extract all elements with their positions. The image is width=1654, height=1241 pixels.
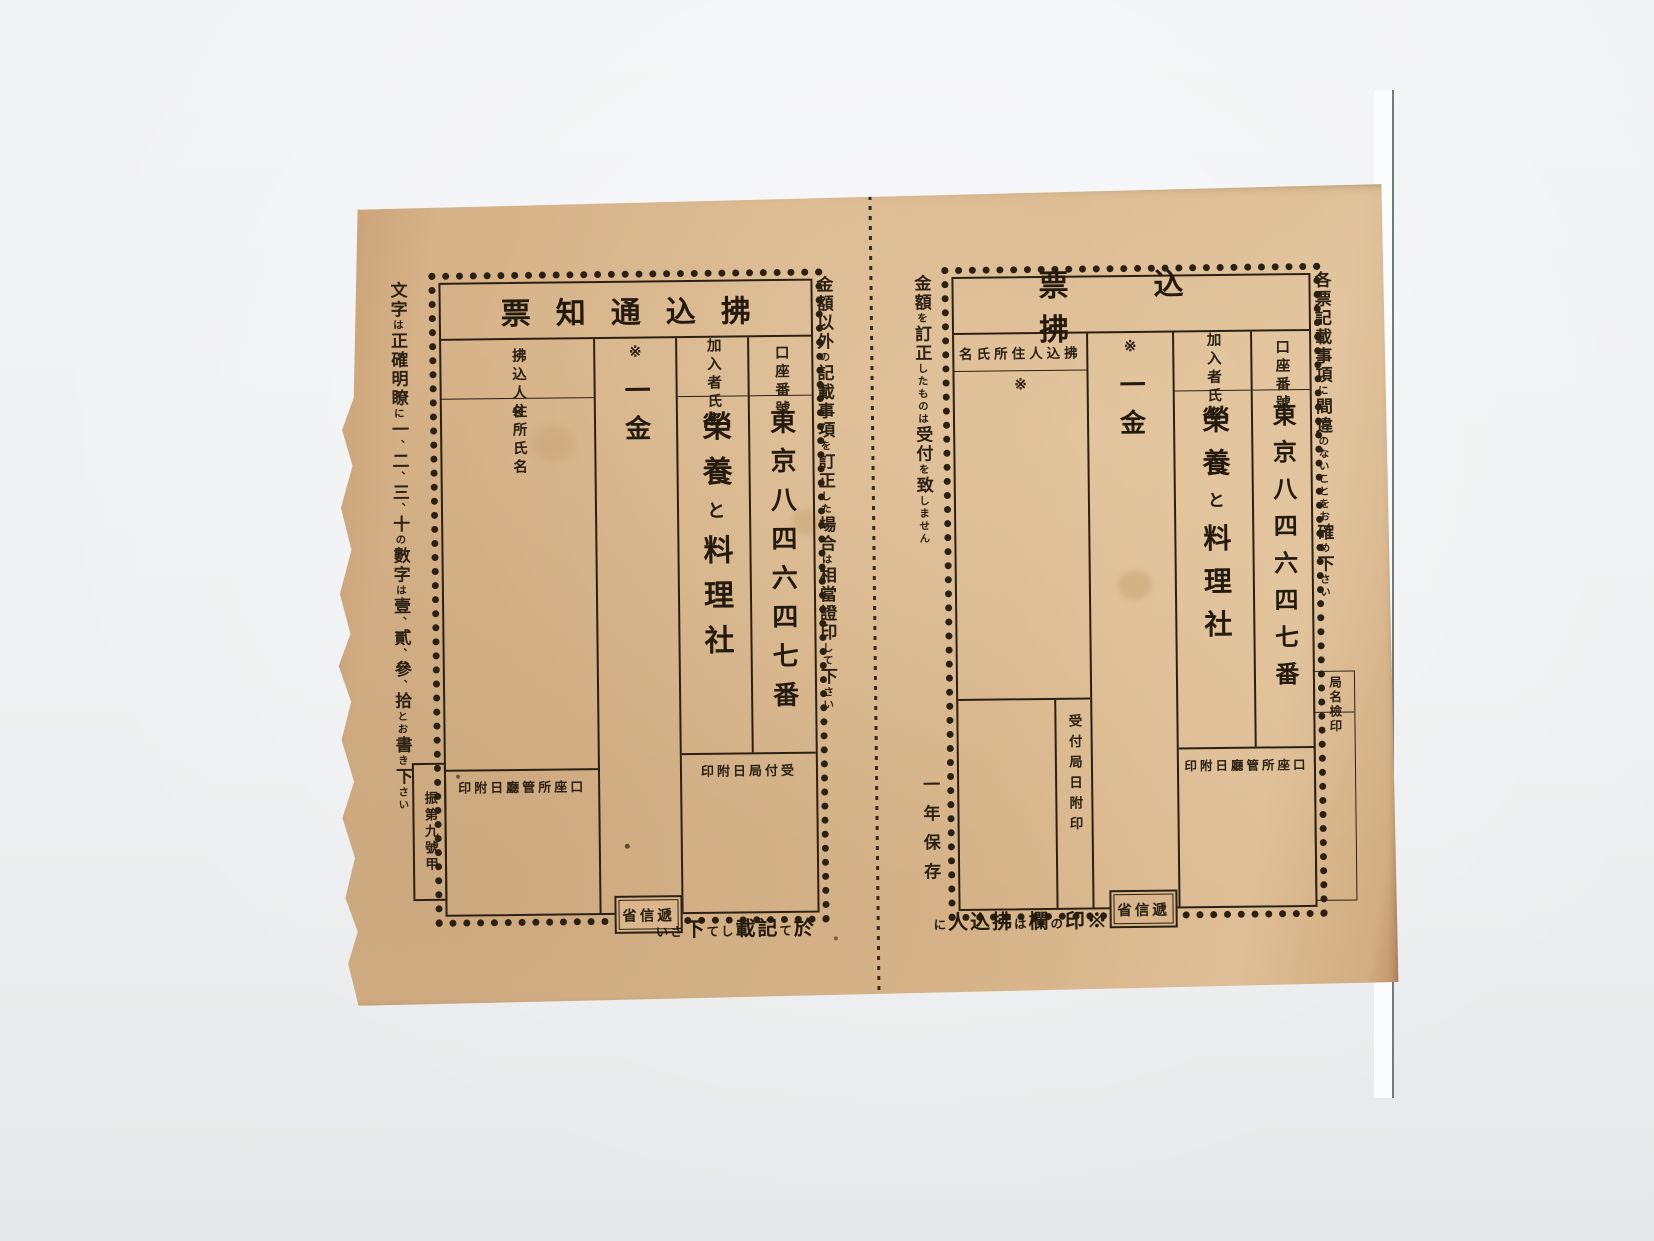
right-slip-title: 票込拂 — [953, 275, 1309, 335]
payment-slip: 票込拂 名氏所住人込拂 ※ 受付局日附印 — [941, 263, 1327, 921]
payer-asterisk: ※ — [511, 399, 524, 429]
office-name-label: 局名 — [1327, 676, 1341, 705]
subscriber-label: 加入者氏名 — [1203, 332, 1223, 390]
account-number-label: 口座番號 — [1271, 339, 1290, 381]
payer-column: 名氏所住人込拂 ※ 受付局日附印 — [954, 333, 1095, 908]
account-number-column: 口座番號 東京八四六四七番 — [1252, 331, 1314, 747]
account-office-stamp-area: 印附日廳管所座口 — [1179, 746, 1316, 907]
right-slip-amount-correction-note: 金額を訂正したものは受付を致しません — [912, 274, 932, 574]
subscriber-name: 榮養と料理社 — [1193, 405, 1236, 685]
left-slip-writing-instruction: 文字は正確明瞭に一、二、三、十の數字は壹、貳、參、拾とお書き下さい — [388, 281, 410, 756]
account-office-stamp-area: 印附日廳管所座口 — [446, 768, 600, 915]
office-stamp-cell — [1314, 712, 1356, 899]
amount-column: ※ 一金 — [595, 338, 684, 913]
account-number-column: 口座番號 東京八四六四七番 — [749, 337, 816, 753]
account-number-value: 東京八四六四七番 — [762, 408, 803, 743]
subscriber-account-pair: 加入者氏名 榮養と料理社 口座番號 東京八四六四七番 — [677, 337, 818, 912]
payer-label: 拂込人住所氏名 — [508, 348, 527, 390]
subscriber-column: 加入者氏名 榮養と料理社 — [677, 337, 754, 753]
account-number-header: 口座番號 — [1252, 331, 1310, 391]
account-number-label: 口座番號 — [771, 345, 790, 387]
amount-asterisk: ※ — [629, 339, 642, 369]
payer-header: 拂込人住所氏名 — [441, 339, 594, 400]
photo-scene: 文字は正確明瞭に一、二、三、十の數字は壹、貳、參、拾とお書き下さい 振第九號甲 … — [0, 0, 1654, 1241]
office-stamp-box: 局名檢印 — [1313, 670, 1358, 900]
receiving-office-stamp-area: 受付局日附印 — [958, 697, 1092, 908]
payment-slip-frame: 票込拂 名氏所住人込拂 ※ 受付局日附印 — [951, 273, 1317, 911]
account-office-stamp-label: 印附日廳管所座口 — [446, 770, 598, 797]
payer-column: 拂込人住所氏名 ※ 印附日廳管所座口 — [441, 339, 602, 915]
payer-asterisk: ※ — [1014, 371, 1027, 401]
subscriber-header: 加入者氏名 — [677, 337, 748, 397]
payment-notice-slip: 票知通込拂 拂込人住所氏名 ※ 印附日廳管所座口 — [428, 268, 829, 926]
amount-label: 一金 — [1112, 371, 1150, 447]
amount-asterisk: ※ — [1124, 333, 1137, 363]
receiving-office-stamp-area: 印附日局付受 — [682, 752, 818, 913]
paper-speck — [834, 936, 838, 940]
payment-slip-booklet: 文字は正確明瞭に一、二、三、十の數字は壹、貳、參、拾とお書き下さい 振第九號甲 … — [333, 182, 1400, 1009]
right-bottom-caption: に人込拂は欄の印※ — [934, 904, 1144, 935]
account-number-value: 東京八四六四七番 — [1264, 402, 1303, 732]
subscriber-account-pair: 加入者氏名 榮養と料理社 口座番號 東京八四六四七番 — [1174, 331, 1316, 906]
receiving-office-stamp-cell: 受付局日附印 — [1056, 699, 1092, 907]
account-number-header: 口座番號 — [749, 337, 812, 397]
subscriber-label: 加入者氏名 — [703, 338, 723, 396]
subscriber-header: 加入者氏名 — [1174, 332, 1251, 392]
payment-notice-slip-frame: 票知通込拂 拂込人住所氏名 ※ 印附日廳管所座口 — [438, 279, 819, 917]
payer-entry-area — [518, 429, 522, 769]
receiving-office-stamp-label: 印附日局付受 — [682, 754, 816, 781]
left-bottom-caption: いさ下てし載記て於 — [630, 912, 816, 943]
office-stamp-header: 局名檢印 — [1314, 671, 1354, 712]
receiving-office-stamp-label: 受付局日附印 — [1063, 700, 1085, 908]
perforation-line — [868, 196, 880, 991]
payer-label: 名氏所住人込拂 — [954, 333, 1086, 371]
amount-label: 一金 — [617, 376, 655, 452]
payer-entry-area — [1021, 401, 1024, 698]
subscriber-column: 加入者氏名 榮養と料理社 — [1174, 332, 1257, 748]
left-slip-title: 票知通込拂 — [440, 281, 811, 341]
retention-note: 一年保存 — [921, 775, 939, 905]
stamp-box — [958, 700, 1058, 909]
office-stamp-labels: 局名檢印 — [1326, 676, 1342, 708]
account-office-stamp-label: 印附日廳管所座口 — [1179, 748, 1314, 775]
amount-column: ※ 一金 — [1088, 332, 1181, 907]
subscriber-name: 榮養と料理社 — [691, 410, 738, 690]
